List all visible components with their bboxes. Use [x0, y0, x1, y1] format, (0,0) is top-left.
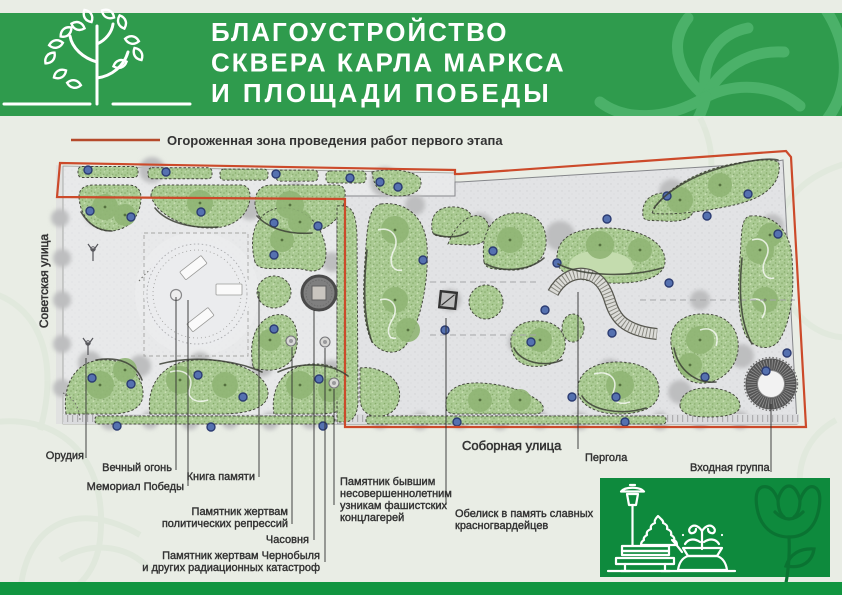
svg-text:Пергола: Пергола — [585, 452, 628, 464]
svg-text:Памятник бывшим: Памятник бывшим — [340, 476, 435, 488]
svg-text:Памятник жертвам: Памятник жертвам — [192, 506, 288, 518]
svg-text:Огороженная зона проведения ра: Огороженная зона проведения работ первог… — [167, 133, 503, 148]
svg-text:Входная группа: Входная группа — [690, 462, 771, 474]
svg-text:Обелиск в память славных: Обелиск в память славных — [455, 508, 594, 520]
svg-text:Вечный огонь: Вечный огонь — [102, 462, 172, 474]
svg-text:красногвардейцев: красногвардейцев — [455, 520, 548, 532]
svg-text:Орудия: Орудия — [46, 450, 84, 462]
svg-text:Соборная улица: Соборная улица — [462, 438, 562, 453]
svg-text:узникам фашистских: узникам фашистских — [340, 500, 448, 512]
svg-text:БЛАГОУСТРОЙСТВО: БЛАГОУСТРОЙСТВО — [211, 17, 509, 47]
svg-text:СКВЕРА КАРЛА МАРКСА: СКВЕРА КАРЛА МАРКСА — [211, 48, 566, 78]
svg-text:Мемориал Победы: Мемориал Победы — [87, 481, 184, 493]
svg-text:Памятник жертвам Чернобыля: Памятник жертвам Чернобыля — [162, 550, 320, 562]
svg-text:Советская улица: Советская улица — [37, 234, 51, 329]
svg-text:несовершеннолетним: несовершеннолетним — [340, 488, 452, 500]
svg-text:и других радиационных катастро: и других радиационных катастроф — [142, 562, 320, 574]
svg-text:концлагерей: концлагерей — [340, 512, 404, 524]
svg-text:Часовня: Часовня — [266, 534, 309, 546]
svg-text:Книга памяти: Книга памяти — [187, 471, 255, 483]
svg-text:И ПЛОЩАДИ ПОБЕДЫ: И ПЛОЩАДИ ПОБЕДЫ — [211, 78, 552, 108]
svg-text:политических репрессий: политических репрессий — [162, 518, 288, 530]
